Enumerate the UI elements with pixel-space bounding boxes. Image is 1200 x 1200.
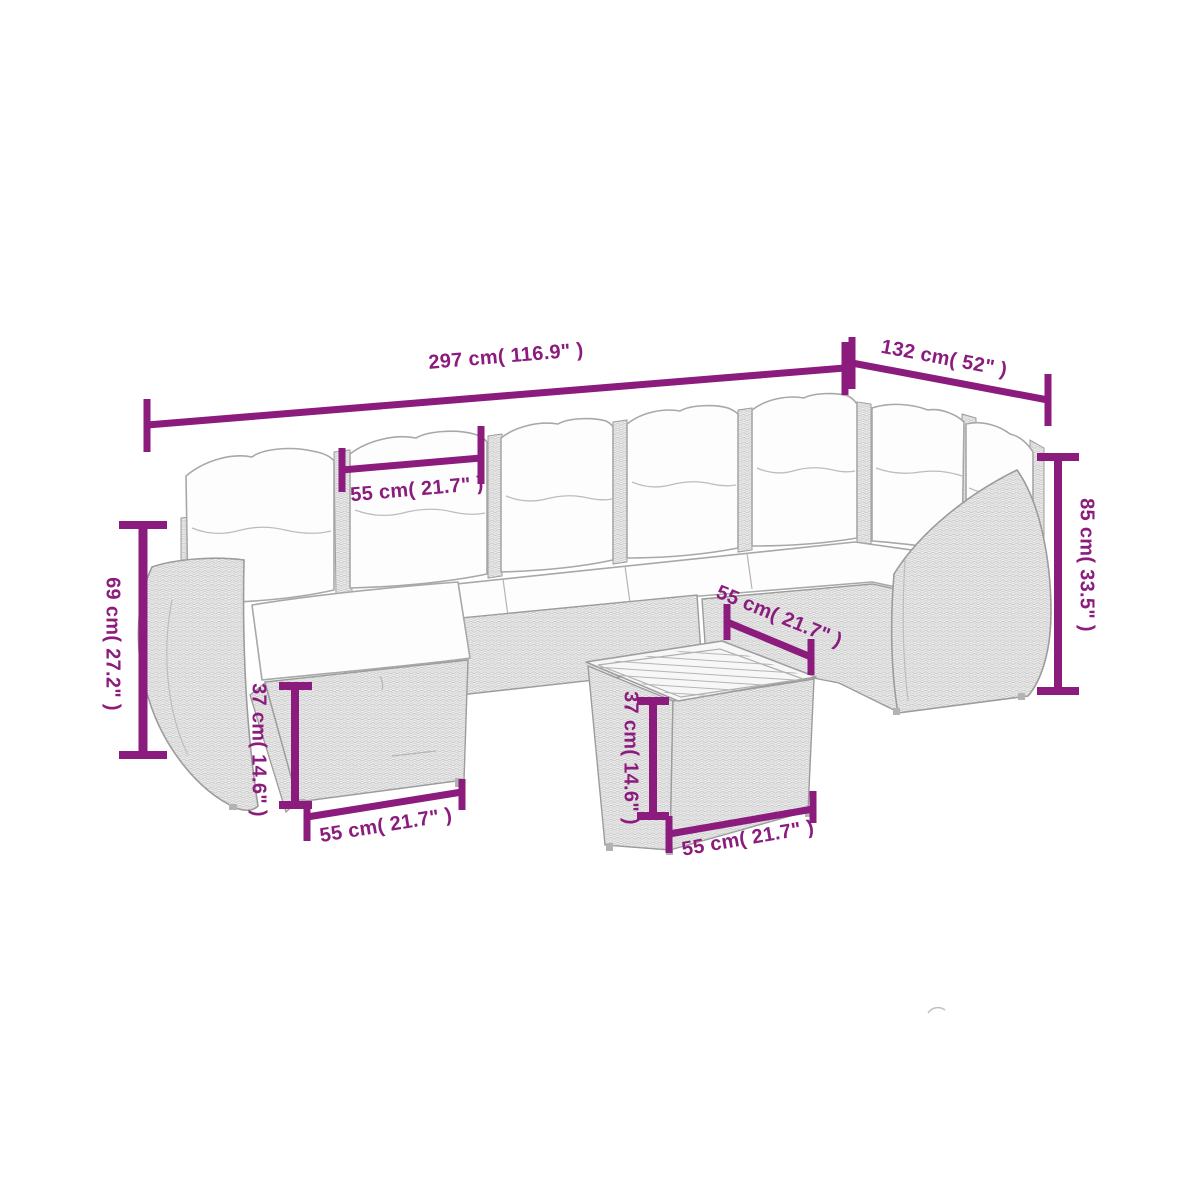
furniture-line-art: [0, 0, 1200, 1200]
left-arm: [138, 558, 258, 810]
label-table-height: 37 cm( 14.6" ): [619, 691, 642, 825]
label-back-height-right: 85 cm( 33.5" ): [1075, 498, 1098, 632]
product-dimension-diagram: 297 cm( 116.9" ) 132 cm( 52" ) 69 cm( 27…: [0, 0, 1200, 1200]
ottoman: [250, 582, 470, 812]
label-arm-height-left: 69 cm( 27.2" ): [101, 577, 124, 711]
floor-mark: [928, 1008, 945, 1013]
label-ottoman-height: 37 cm( 14.6" ): [247, 683, 270, 817]
